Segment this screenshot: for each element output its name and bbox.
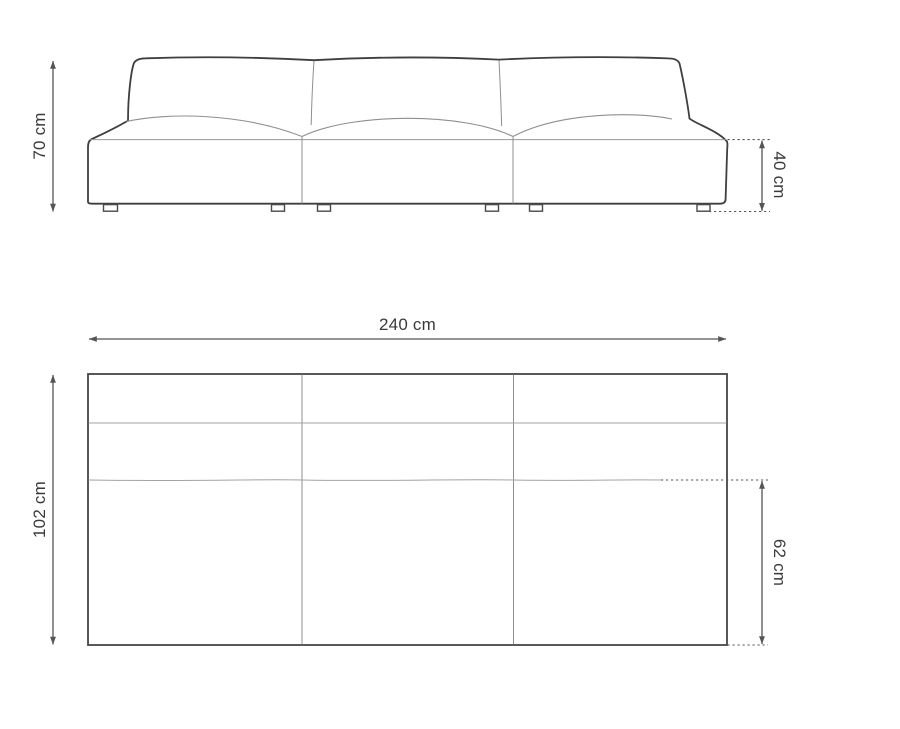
- sofa-dimension-diagram: 70 cm 40 cm 240 cm: [0, 0, 900, 729]
- depth-dimension-102: 102 cm: [30, 375, 53, 645]
- height-dimension-70: 70 cm: [30, 61, 53, 212]
- sofa-legs: [104, 205, 711, 212]
- total-depth-label: 102 cm: [30, 481, 49, 538]
- seat-depth-dimension-62: 62 cm: [762, 481, 789, 644]
- sofa-base-fill: [88, 115, 727, 204]
- front-view-drawing: 70 cm 40 cm: [30, 57, 789, 211]
- seat-height-label: 40 cm: [770, 151, 789, 198]
- top-view-drawing: 240 cm 102 cm 62 cm: [30, 315, 789, 645]
- width-dimension-240: 240 cm: [89, 315, 726, 339]
- sofa-top-outline: [88, 374, 727, 645]
- total-height-label: 70 cm: [30, 112, 49, 159]
- diagram-svg: 70 cm 40 cm 240 cm: [0, 0, 900, 729]
- total-width-label: 240 cm: [379, 315, 436, 334]
- seat-depth-label: 62 cm: [770, 539, 789, 586]
